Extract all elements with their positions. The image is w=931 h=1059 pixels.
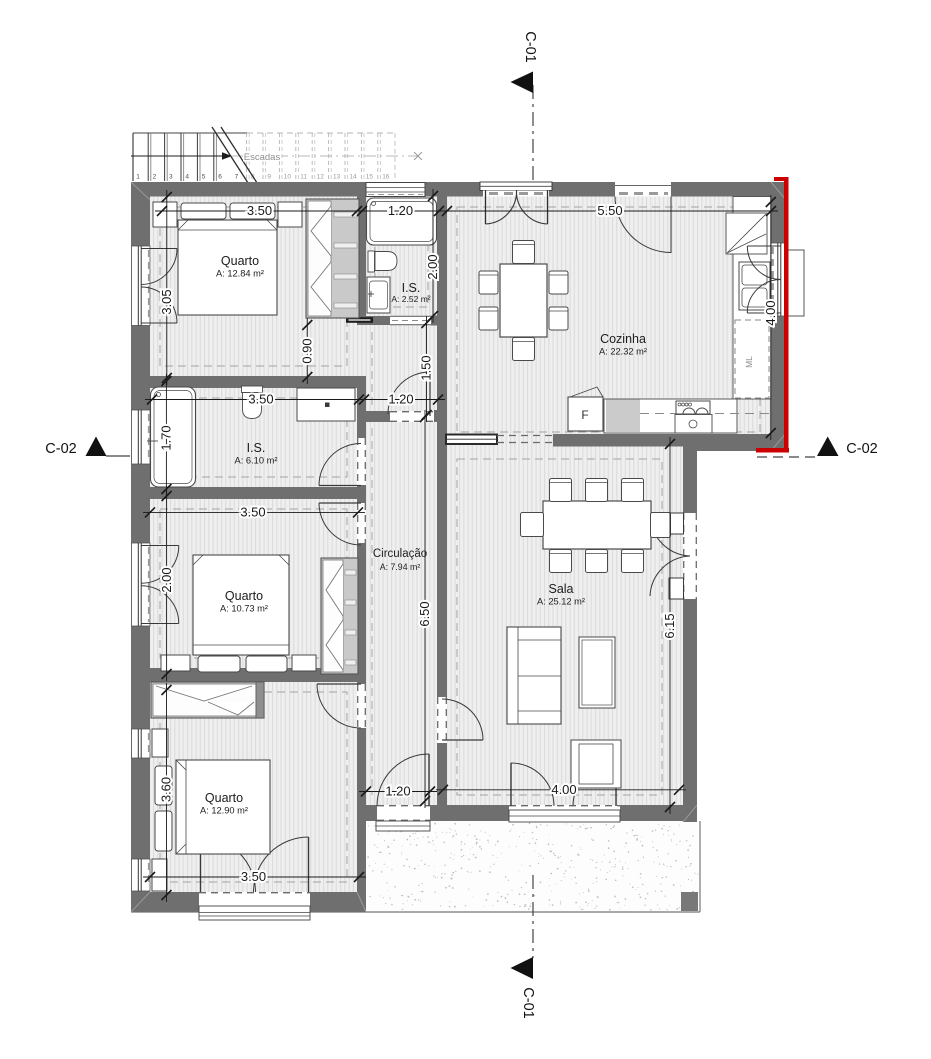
svg-text:1.20: 1.20: [385, 784, 410, 799]
svg-text:ML: ML: [744, 356, 754, 368]
svg-text:Quarto: Quarto: [225, 589, 263, 603]
svg-text:3: 3: [169, 174, 173, 181]
svg-text:16: 16: [382, 174, 390, 181]
svg-text:6: 6: [218, 174, 222, 181]
svg-text:7: 7: [235, 174, 239, 181]
svg-text:4: 4: [185, 174, 189, 181]
svg-text:A: 12.90 m²: A: 12.90 m²: [200, 806, 248, 816]
svg-text:3.50: 3.50: [247, 203, 272, 218]
svg-text:11: 11: [300, 174, 307, 181]
svg-text:12: 12: [317, 174, 325, 181]
svg-text:6.50: 6.50: [417, 601, 432, 626]
svg-text:0.90: 0.90: [300, 338, 315, 363]
svg-text:1.70: 1.70: [159, 425, 174, 450]
svg-text:6.15: 6.15: [662, 613, 677, 638]
svg-text:I.S.: I.S.: [247, 441, 266, 455]
svg-text:3.50: 3.50: [240, 505, 265, 520]
svg-text:Circulação: Circulação: [373, 548, 427, 560]
svg-text:C-02: C-02: [846, 441, 877, 457]
svg-text:A: 22.32 m²: A: 22.32 m²: [599, 347, 647, 357]
svg-text:Cozinha: Cozinha: [600, 332, 646, 346]
svg-text:1.20: 1.20: [388, 203, 413, 218]
svg-text:C-01: C-01: [520, 987, 536, 1018]
svg-text:C-01: C-01: [522, 31, 538, 62]
svg-text:5.50: 5.50: [597, 203, 622, 218]
svg-text:Escadas: Escadas: [244, 152, 281, 163]
svg-text:2: 2: [153, 174, 157, 181]
svg-text:1.20: 1.20: [388, 392, 413, 407]
svg-text:3.05: 3.05: [159, 289, 174, 314]
svg-text:1.50: 1.50: [419, 355, 434, 380]
svg-text:A: 7.94 m²: A: 7.94 m²: [380, 562, 421, 572]
svg-text:Quarto: Quarto: [205, 791, 243, 805]
svg-text:4.00: 4.00: [763, 300, 778, 325]
svg-text:1: 1: [136, 174, 140, 181]
svg-text:I.S.: I.S.: [402, 281, 421, 295]
svg-text:4.00: 4.00: [551, 782, 576, 797]
svg-text:A: 10.73 m²: A: 10.73 m²: [220, 604, 268, 614]
svg-text:A: 25.12 m²: A: 25.12 m²: [537, 597, 585, 607]
svg-text:2.00: 2.00: [425, 254, 440, 279]
svg-text:15: 15: [366, 174, 374, 181]
svg-text:A: 6.10 m²: A: 6.10 m²: [235, 456, 278, 466]
svg-text:13: 13: [333, 174, 341, 181]
svg-text:5: 5: [202, 174, 206, 181]
svg-text:3.50: 3.50: [241, 869, 266, 884]
svg-text:A: 12.84 m²: A: 12.84 m²: [216, 269, 264, 279]
svg-text:14: 14: [349, 174, 357, 181]
svg-text:A: 2.52 m²: A: 2.52 m²: [391, 294, 430, 304]
svg-text:3.60: 3.60: [159, 777, 174, 802]
svg-text:Sala: Sala: [548, 582, 573, 596]
svg-text:C-02: C-02: [45, 441, 76, 457]
svg-text:F: F: [581, 408, 588, 422]
svg-text:3.50: 3.50: [248, 392, 273, 407]
svg-text:2.00: 2.00: [159, 567, 174, 592]
svg-text:Quarto: Quarto: [221, 254, 259, 268]
svg-text:9: 9: [267, 174, 271, 181]
svg-text:10: 10: [284, 174, 292, 181]
